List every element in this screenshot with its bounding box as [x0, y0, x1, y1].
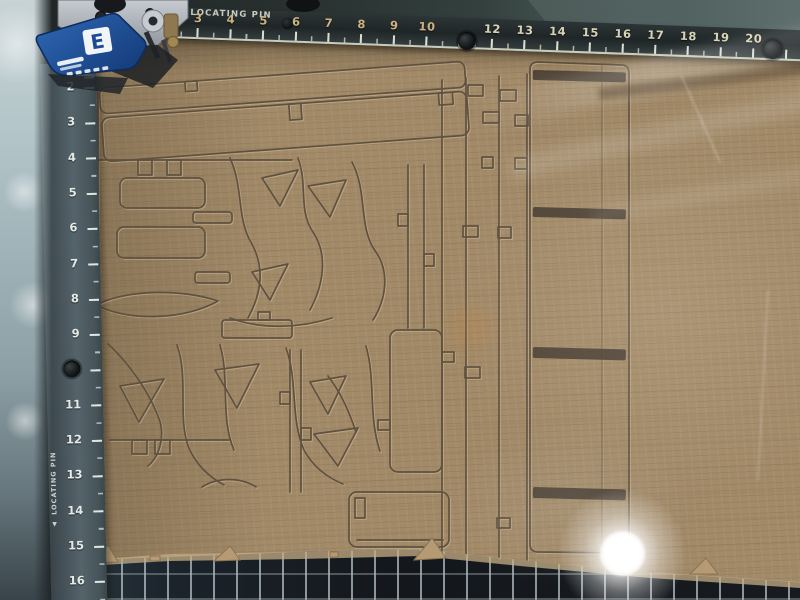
top-ruler-number-9: 9: [381, 18, 407, 33]
top-ruler-number-6: 6: [283, 14, 309, 29]
left-ruler-number-13: 13: [50, 467, 82, 482]
slotted-panel-bars: [533, 70, 626, 500]
glare-blob: [4, 170, 44, 214]
top-ruler-number-17: 17: [643, 27, 669, 42]
top-ruler-number-18: 18: [675, 29, 701, 44]
glare-blob: [10, 280, 56, 330]
left-ruler-number-9: 9: [48, 326, 80, 341]
locating-pin-marker-icon: ▲: [51, 520, 58, 528]
left-ruler-number-11: 11: [49, 397, 81, 412]
badge-shadow: [48, 74, 128, 94]
top-ruler-number-7: 7: [316, 15, 342, 30]
top-ruler-number-13: 13: [512, 23, 538, 38]
top-ruler-number-15: 15: [577, 25, 603, 40]
focus-gauge: [164, 14, 178, 38]
laser-head: E: [28, 0, 208, 110]
left-ruler-number-12: 12: [50, 432, 82, 447]
glare-blob: [6, 400, 44, 442]
side-rail-pieces: [349, 74, 528, 560]
top-ruler-number-16: 16: [610, 26, 636, 41]
top-ruler-number-12: 12: [479, 21, 505, 36]
left-ruler-number-14: 14: [51, 503, 83, 518]
top-ruler-number-4: 4: [218, 12, 244, 27]
top-ruler-number-8: 8: [348, 17, 374, 32]
lens-opening: [149, 17, 158, 26]
bracket-pieces-row1: [222, 158, 434, 338]
top-ruler-number-10: 10: [414, 19, 440, 34]
top-ruler-number-5: 5: [250, 13, 276, 28]
left-ruler-number-16: 16: [53, 573, 85, 588]
top-ruler-number-19: 19: [708, 30, 734, 45]
top-ruler-mount-hole: [458, 32, 477, 51]
left-ruler-mount-hole: [63, 360, 80, 377]
laser-cutter-photo: ▲ LOCATING PIN 2345678910121314151617181…: [0, 0, 800, 600]
bracket-pieces-row2: [108, 344, 380, 492]
slotted-panel-piece: [530, 62, 629, 553]
left-ruler-number-15: 15: [52, 538, 84, 553]
top-ruler-number-14: 14: [544, 24, 570, 39]
cut-pattern: [96, 61, 629, 560]
focus-gauge-dial: [168, 37, 179, 48]
